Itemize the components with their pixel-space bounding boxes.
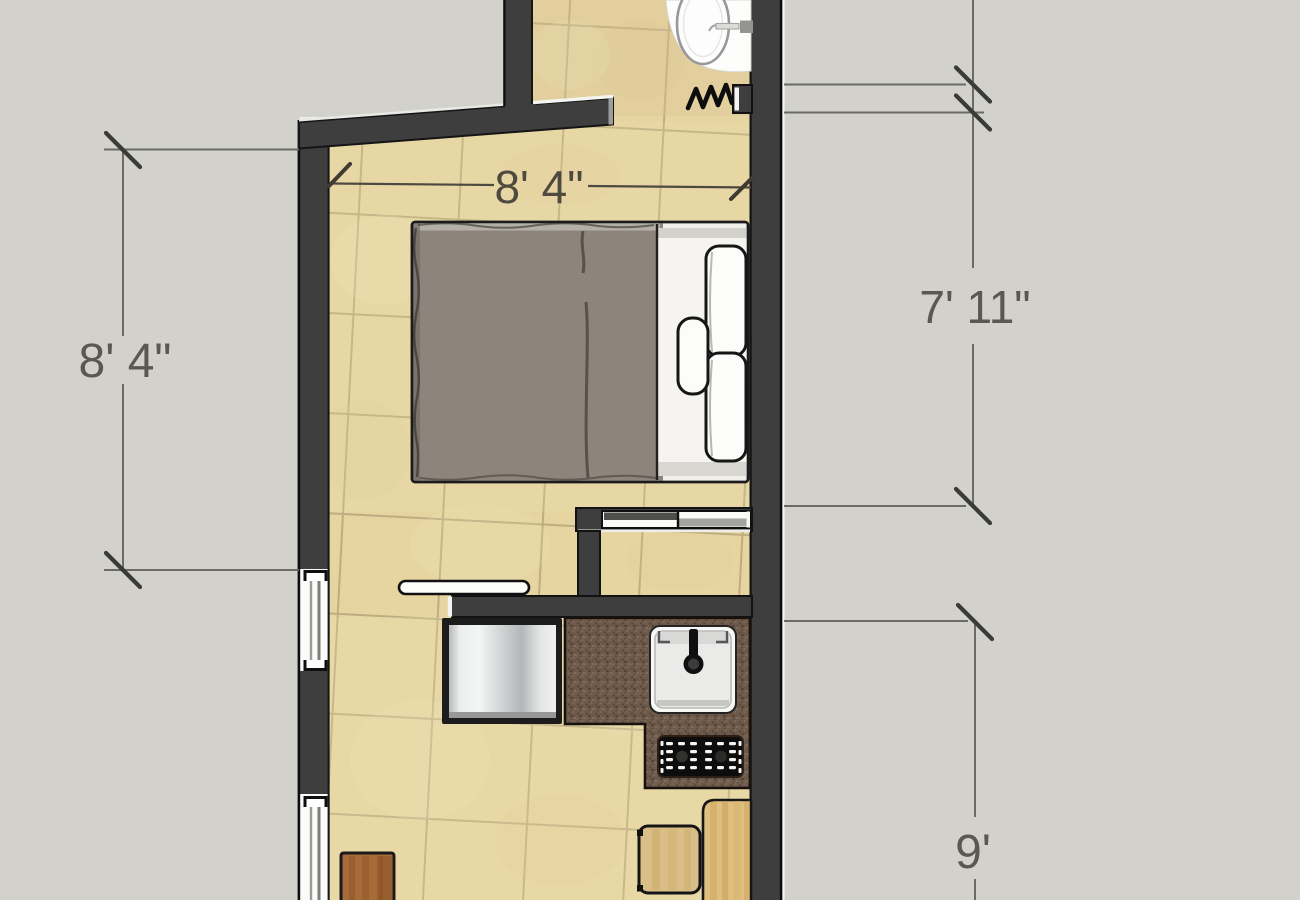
svg-text:8' 4": 8' 4": [494, 161, 583, 213]
svg-text:9': 9': [955, 826, 991, 879]
svg-text:8' 4": 8' 4": [79, 335, 172, 388]
svg-text:7' 11": 7' 11": [919, 281, 1030, 333]
